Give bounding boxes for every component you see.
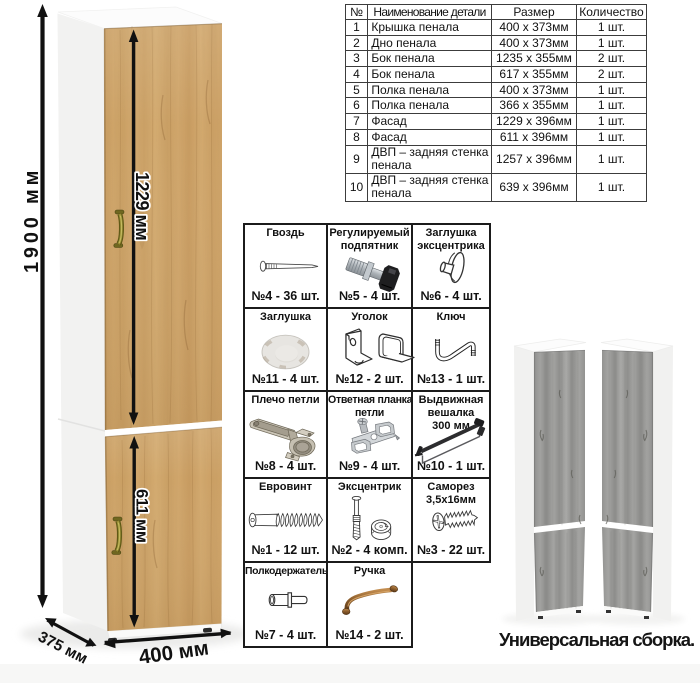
svg-text:1229 мм: 1229 мм [132,172,152,240]
svg-text:1900 мм: 1900 мм [21,167,43,273]
svg-text:611 мм: 611 мм [133,489,151,543]
